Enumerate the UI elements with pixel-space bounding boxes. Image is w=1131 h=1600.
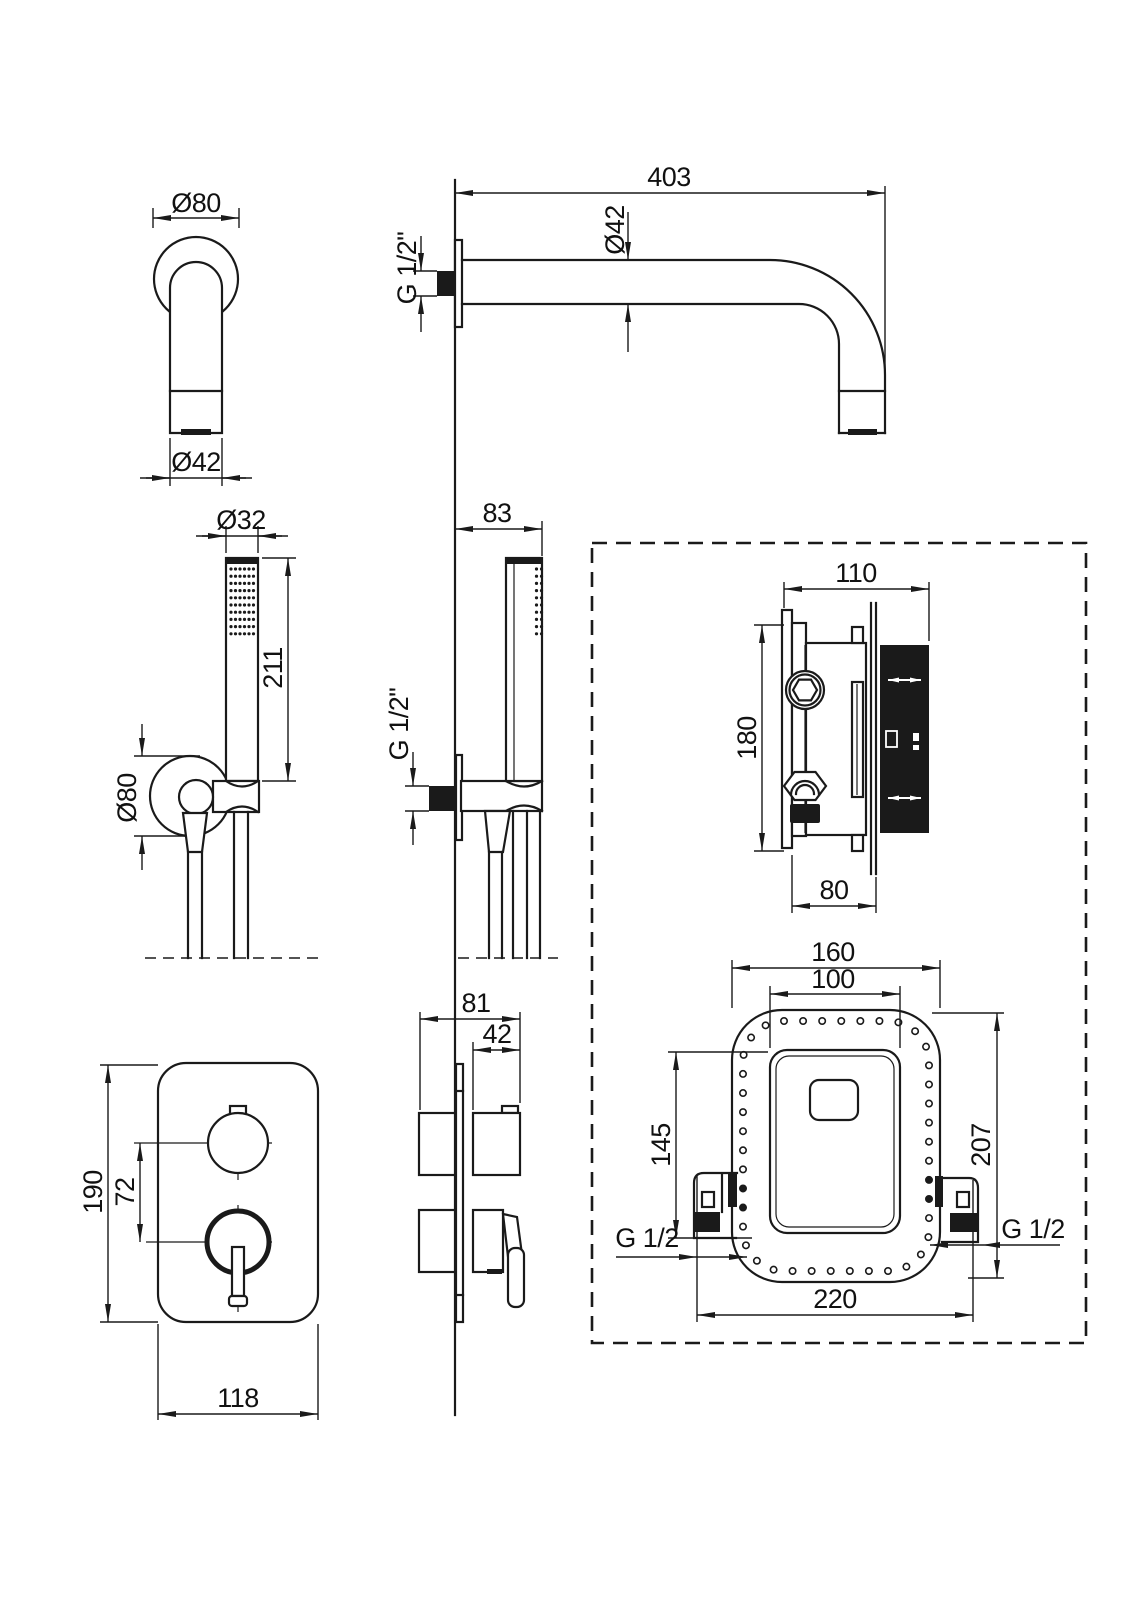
spout-aerator [181, 429, 211, 435]
view-handshower-side: 83 G 1/2" [384, 498, 558, 958]
spout-pipe-tip [848, 429, 877, 435]
diverter-lever [232, 1247, 244, 1296]
dim-valve-height-right: 207 [966, 1123, 996, 1167]
lever-grip-side [508, 1248, 524, 1307]
valve-insulation-box [880, 645, 929, 833]
holder-thread-connector [429, 786, 456, 811]
dim-trim-total-depth: 81 [461, 988, 490, 1018]
dim-wand-length: 211 [258, 647, 288, 689]
dim-valve-height: 180 [732, 716, 762, 760]
dim-thread-right: G 1/2 [1001, 1214, 1065, 1244]
dim-trim-height: 190 [78, 1170, 108, 1214]
view-trim-front: 190 72 118 [78, 1063, 318, 1420]
dim-knob-spacing: 72 [110, 1177, 140, 1206]
view-trim-side: 81 42 [419, 988, 524, 1322]
spout-tube [170, 262, 222, 433]
embedded-body-top [419, 1113, 455, 1175]
view-valve-front: 160 100 145 207 G 1/2 G 1/2 220 [615, 937, 1065, 1322]
spout-wall-flange [455, 240, 462, 327]
dim-valve-outer-width: 160 [811, 937, 855, 967]
dim-spout-outlet-dia: Ø42 [171, 447, 221, 477]
dim-valve-height-left: 145 [646, 1123, 676, 1167]
drawing-page: Ø80 Ø42 403 Ø42 G 1/2" [0, 0, 1131, 1600]
spout-pipe-outer [462, 260, 885, 433]
spout-thread-connector [437, 271, 455, 296]
dim-spout-flange-dia: Ø80 [171, 188, 221, 218]
dim-holder-dia: Ø80 [112, 773, 142, 823]
diverter-knob-side [473, 1210, 503, 1272]
technical-drawing-canvas: Ø80 Ø42 403 Ø42 G 1/2" [0, 0, 1131, 1600]
left-port-connector [694, 1212, 720, 1232]
dim-trim-knob-depth: 42 [482, 1019, 511, 1049]
dim-thread-left: G 1/2 [615, 1223, 679, 1253]
thermostat-knob [208, 1113, 268, 1173]
spout-pipe-inner [462, 304, 839, 433]
dim-spout-pipe-dia: Ø42 [600, 205, 630, 255]
dim-valve-total-width: 220 [813, 1284, 857, 1314]
valve-top-port [786, 671, 824, 709]
dim-holder-offset: 83 [482, 498, 511, 528]
right-port-connector [950, 1213, 978, 1232]
dim-spout-length: 403 [647, 162, 691, 192]
hose-outlet-cone [183, 813, 207, 852]
holder-knob [179, 780, 213, 814]
embedded-body-bottom [419, 1210, 455, 1272]
dim-spout-thread: G 1/2" [392, 232, 422, 305]
trim-plate-edge [456, 1064, 463, 1322]
valve-front-inner [770, 1050, 900, 1233]
view-spout-side: 403 Ø42 G 1/2" [392, 162, 885, 435]
view-handshower-front: Ø32 211 Ø80 [112, 505, 320, 958]
dim-valve-body-depth: 80 [819, 875, 848, 905]
valve-front-window [810, 1080, 858, 1120]
dim-trim-width: 118 [217, 1383, 259, 1413]
view-spout-front: Ø80 Ø42 [140, 188, 252, 486]
dim-wand-dia: Ø32 [216, 505, 266, 535]
hose-cone-side [485, 811, 510, 852]
dim-valve-inner-width: 100 [811, 964, 855, 994]
valve-port-connector [790, 804, 820, 823]
dim-valve-depth: 110 [835, 558, 877, 588]
thermostat-knob-side [473, 1113, 520, 1175]
dim-holder-thread: G 1/2" [384, 688, 414, 761]
view-valve-side: 110 180 80 [732, 558, 929, 913]
insulation-mark [913, 733, 919, 741]
